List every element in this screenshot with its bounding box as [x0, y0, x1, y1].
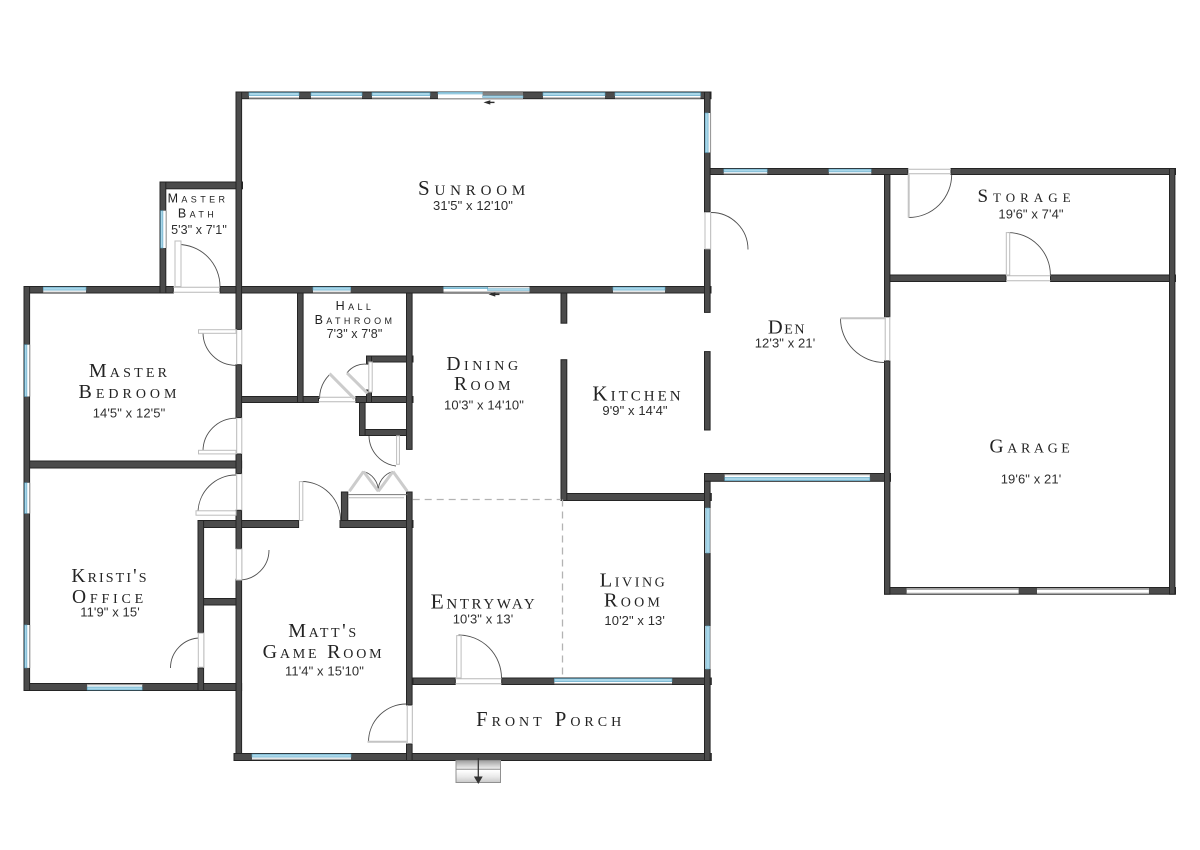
svg-text:11'4" x 15'10": 11'4" x 15'10": [285, 663, 364, 678]
svg-text:Dining: Dining: [446, 354, 521, 375]
svg-text:Living: Living: [600, 570, 668, 592]
svg-text:Bathroom: Bathroom: [315, 313, 396, 327]
svg-text:10'3" x 13': 10'3" x 13': [453, 612, 514, 627]
svg-text:Storage: Storage: [977, 186, 1075, 207]
svg-text:Hall: Hall: [336, 299, 375, 313]
svg-text:7'3" x 7'8": 7'3" x 7'8": [327, 327, 383, 341]
svg-text:Sunroom: Sunroom: [418, 176, 530, 200]
svg-text:11'9" x 15': 11'9" x 15': [80, 604, 140, 619]
svg-text:10'3" x 14'10": 10'3" x 14'10": [444, 398, 524, 413]
svg-text:12'3" x 21': 12'3" x 21': [755, 336, 816, 351]
svg-text:Master: Master: [89, 360, 170, 382]
svg-text:5'3" x 7'1": 5'3" x 7'1": [171, 223, 227, 237]
svg-text:Bath: Bath: [178, 207, 217, 221]
svg-text:Matt's: Matt's: [288, 620, 358, 642]
svg-text:19'6" x 21': 19'6" x 21': [1001, 472, 1062, 487]
svg-text:Kristi's: Kristi's: [71, 566, 148, 587]
svg-text:Room: Room: [604, 590, 663, 612]
svg-text:19'6" x 7'4": 19'6" x 7'4": [998, 207, 1064, 222]
svg-text:14'5" x 12'5": 14'5" x 12'5": [93, 406, 166, 421]
svg-text:Game Room: Game Room: [263, 641, 385, 663]
svg-text:Master: Master: [168, 192, 229, 206]
svg-text:Room: Room: [454, 374, 514, 395]
svg-text:31'5" x 12'10": 31'5" x 12'10": [433, 198, 513, 213]
svg-text:Front Porch: Front Porch: [476, 709, 625, 731]
svg-text:9'9" x 14'4": 9'9" x 14'4": [602, 403, 668, 418]
svg-text:Garage: Garage: [990, 437, 1074, 458]
svg-text:Bedroom: Bedroom: [78, 381, 180, 403]
svg-text:10'2" x 13': 10'2" x 13': [604, 613, 665, 628]
svg-text:Entryway: Entryway: [431, 589, 538, 613]
svg-text:Kitchen: Kitchen: [592, 381, 683, 405]
